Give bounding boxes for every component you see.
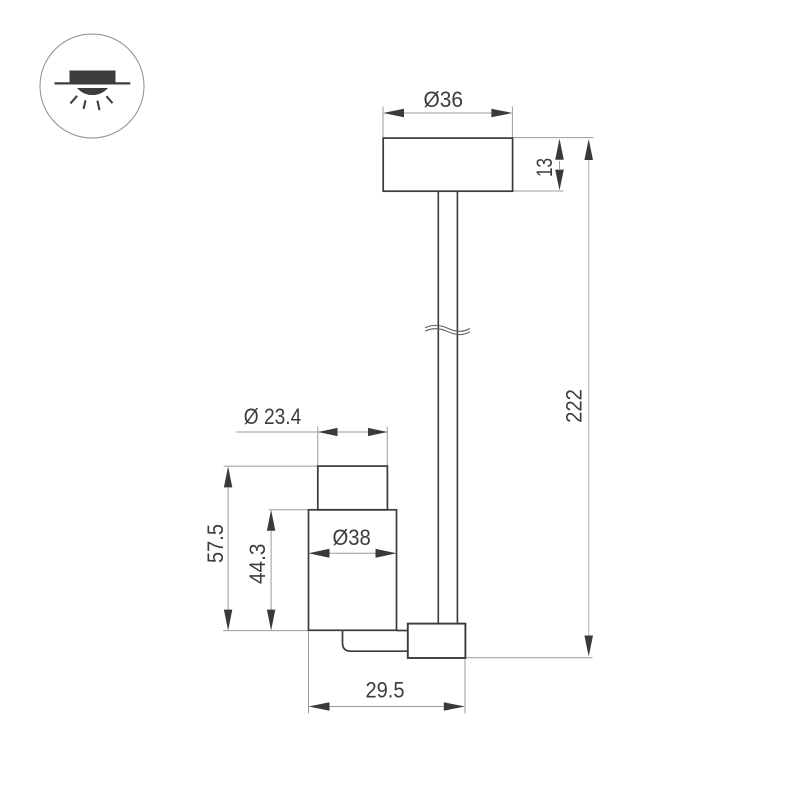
svg-text:44.3: 44.3 xyxy=(245,544,270,584)
svg-text:Ø38: Ø38 xyxy=(332,525,370,550)
svg-text:57.5: 57.5 xyxy=(203,524,228,563)
svg-text:Ø 23.4: Ø 23.4 xyxy=(244,404,302,429)
svg-text:222: 222 xyxy=(562,389,587,423)
svg-text:13: 13 xyxy=(532,158,557,177)
svg-text:Ø36: Ø36 xyxy=(424,87,464,112)
svg-text:29.5: 29.5 xyxy=(366,678,405,703)
